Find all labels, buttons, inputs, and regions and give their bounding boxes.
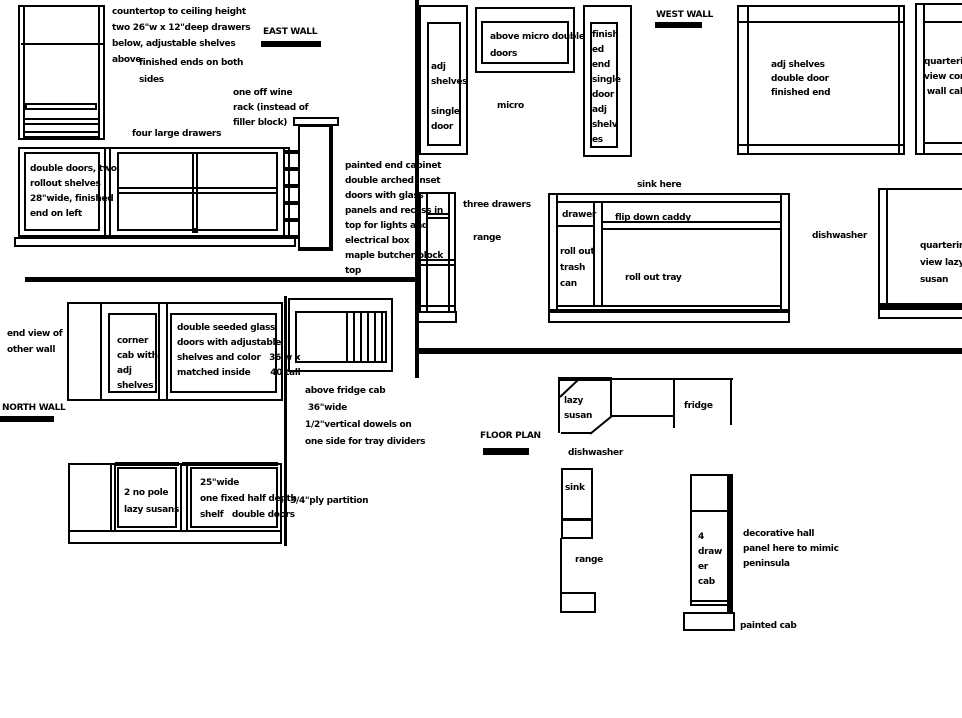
east-base-left-note: double doors, two rollout shelves 28"wid…	[30, 162, 117, 222]
floor-plan-dishwasher-label: dishwasher	[568, 446, 623, 461]
sink-cabinet-caddy-rail-2	[603, 228, 780, 230]
north-upper-divider-3	[166, 304, 168, 399]
east-tall-cabinet-stile-right	[98, 7, 100, 138]
above-fridge-dowel-4	[367, 313, 369, 361]
east-wine-rack-note: one off wine rack (instead of filler blo…	[233, 86, 308, 131]
floor-plan-fridge-right	[730, 380, 732, 425]
floor-plan-sink-lower-box	[561, 519, 593, 539]
east-tall-cabinet-top-rail	[21, 43, 103, 45]
west-single-door-note: adj shelves single door	[431, 60, 467, 135]
quartering-lazy-susan-note: quartering view lazy susan	[920, 238, 962, 289]
drawer-label: drawer	[562, 208, 596, 223]
west-double-door-stile-left	[747, 7, 749, 153]
floor-plan-four-drawer-label: 4 draw er cab	[698, 530, 722, 590]
floor-plan-fridge-left	[673, 380, 675, 428]
floor-plan-four-drawer-rail-1	[692, 510, 728, 512]
east-wine-rack-slot-1	[285, 150, 298, 154]
east-wine-rack-slot-6	[285, 235, 298, 239]
east-tall-cabinet-drawer-line-2	[25, 123, 98, 125]
east-four-drawer-knob	[192, 228, 198, 233]
floor-plan-range-box	[560, 592, 596, 613]
north-lower-plinth-line	[70, 530, 280, 532]
sink-cabinet-plinth	[548, 311, 790, 323]
east-wall-underline	[261, 41, 321, 47]
east-tall-cabinet-drawer-line-1	[25, 118, 98, 120]
north-lower-divider-3	[180, 465, 182, 530]
east-tall-cabinet-drawer-line-4	[25, 136, 98, 138]
quartering-lazy-susan-stile	[886, 190, 888, 304]
floor-plan-underline	[483, 448, 529, 455]
east-painted-cabinet-body	[298, 125, 333, 251]
west-three-drawer-stile-left	[426, 194, 428, 311]
west-corner-wall-top-rail	[925, 21, 962, 23]
east-wine-rack-slot-3	[285, 184, 298, 188]
west-corner-wall-note: quartering view corner wall cab	[924, 55, 962, 100]
west-double-door-note: adj shelves double door finished end	[771, 58, 830, 100]
north-double-doors-note: 25"wide one fixed half depth shelf doubl…	[200, 475, 297, 523]
west-wall-underline	[655, 22, 702, 28]
east-finished-ends-note: finished ends on both sides	[139, 55, 243, 89]
north-lazy-susan-top	[115, 462, 179, 466]
floor-plan-painted-cab-label: painted cab	[740, 619, 797, 634]
west-three-drawer-rail-3	[421, 305, 454, 307]
west-three-drawer-stile-right	[448, 194, 450, 311]
north-corner-cab-note: corner cab with adj shelves	[117, 334, 158, 394]
west-finished-end-note: finish ed end single door adj shelv es	[592, 28, 621, 148]
floor-plan-decorative-panel-bar	[727, 474, 733, 614]
east-four-drawer-rail-1	[119, 187, 276, 189]
east-four-drawer-rail-2	[119, 192, 276, 194]
west-three-drawer-rail-1	[421, 259, 454, 261]
east-wine-rack-slot-2	[285, 167, 298, 171]
north-lazy-susans-note: 2 no pole lazy susans	[124, 485, 179, 519]
floor-plan-range-label: range	[575, 553, 603, 568]
above-fridge-dowel-1	[346, 313, 348, 361]
sink-cabinet-bottom-rail	[558, 305, 780, 307]
sink-cabinet-top-rail	[558, 201, 780, 203]
west-double-door-top-rail	[739, 21, 903, 23]
divider-horizontal-right	[418, 348, 962, 354]
kitchen-plan-drawing: EAST WALL countertop to ceiling height t…	[0, 0, 962, 718]
roll-out-trash-note: roll out trash can	[560, 244, 594, 292]
end-view-note: end view of other wall	[7, 326, 62, 358]
north-lower-divider-2	[114, 465, 116, 530]
floor-plan-painted-cab-box	[683, 612, 735, 631]
sink-cabinet-stile-left	[556, 195, 558, 309]
flip-down-caddy-label: flip down caddy	[615, 211, 691, 226]
floor-plan-heading: FLOOR PLAN	[480, 429, 541, 444]
sink-cabinet-drawer-rail	[558, 225, 593, 227]
floor-plan-decorative-panel-note: decorative hall panel here to mimic peni…	[743, 527, 839, 572]
range-label: range	[473, 231, 501, 246]
north-wall-heading: NORTH WALL	[2, 401, 65, 416]
north-upper-divider-2	[158, 304, 160, 399]
above-fridge-dowel-2	[353, 313, 355, 361]
north-upper-divider-1	[100, 304, 102, 399]
west-three-drawer-cabinet	[419, 192, 456, 313]
west-double-door-stile-right	[898, 7, 900, 153]
three-drawers-label: three drawers	[463, 198, 531, 213]
floor-plan-range-wall	[560, 538, 562, 594]
divider-horizontal-left	[25, 277, 415, 282]
above-fridge-dowel-6	[381, 313, 383, 361]
above-fridge-dowel-5	[374, 313, 376, 361]
sink-here-label: sink here	[637, 178, 681, 193]
east-wine-rack-edge	[283, 149, 285, 237]
dishwasher-label: dishwasher	[812, 229, 867, 244]
east-tall-cabinet-shelf	[25, 103, 97, 110]
west-double-door-bottom-rail	[739, 144, 903, 146]
floor-plan-lazy-susan-label: lazy susan	[564, 394, 592, 424]
floor-plan-four-drawer-rail-2	[692, 600, 728, 602]
sink-cabinet-center-2	[601, 203, 603, 307]
east-tall-cabinet-drawer-line-3	[25, 131, 98, 133]
north-wall-underline	[0, 416, 54, 422]
quartering-lazy-susan-plinth	[878, 308, 962, 319]
west-three-drawer-rail-2	[421, 264, 454, 266]
north-glass-doors-note: double seeded glass doors with adjustabl…	[177, 321, 300, 381]
west-three-drawer-band	[426, 213, 450, 219]
west-three-drawer-base	[416, 311, 457, 323]
sink-cabinet-stile-right	[780, 195, 782, 309]
east-wall-heading: EAST WALL	[263, 25, 317, 40]
east-wine-rack-slot-5	[285, 218, 298, 222]
west-corner-wall-bottom-rail	[925, 142, 962, 144]
west-above-micro-note: above micro double doors	[490, 29, 585, 63]
east-wine-rack-slot-4	[285, 201, 298, 205]
east-base-plinth	[14, 237, 296, 247]
west-wall-heading: WEST WALL	[656, 8, 713, 23]
floor-plan-sink-label: sink	[565, 481, 585, 496]
above-fridge-note: above fridge cab 36"wide 1/2"vertical do…	[305, 383, 425, 451]
ply-partition-label: 3/4"ply partition	[290, 494, 368, 509]
east-four-drawers-note: four large drawers	[132, 127, 221, 142]
floor-plan-fridge-label: fridge	[684, 399, 713, 414]
above-fridge-dowel-3	[360, 313, 362, 361]
west-micro-label: micro	[497, 99, 524, 114]
north-lower-divider-4	[186, 465, 188, 530]
north-double-door-top	[182, 462, 278, 466]
north-lower-divider-1	[110, 465, 112, 530]
roll-out-tray-label: roll out tray	[625, 271, 681, 286]
